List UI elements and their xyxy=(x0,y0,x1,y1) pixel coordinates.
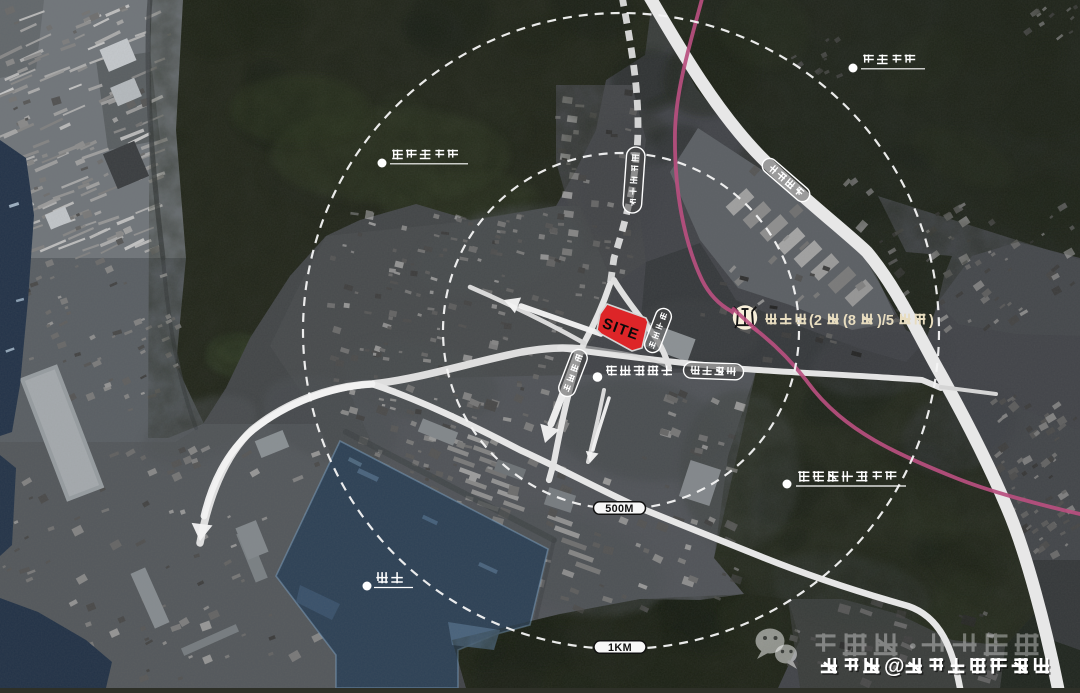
svg-text:500M: 500M xyxy=(605,503,634,515)
svg-text:@: @ xyxy=(884,655,904,678)
svg-text:1KM: 1KM xyxy=(608,642,632,654)
svg-text:)/5: )/5 xyxy=(877,313,894,329)
svg-text:(2: (2 xyxy=(809,313,822,329)
svg-text:(8: (8 xyxy=(843,313,856,329)
svg-text:): ) xyxy=(929,313,934,329)
